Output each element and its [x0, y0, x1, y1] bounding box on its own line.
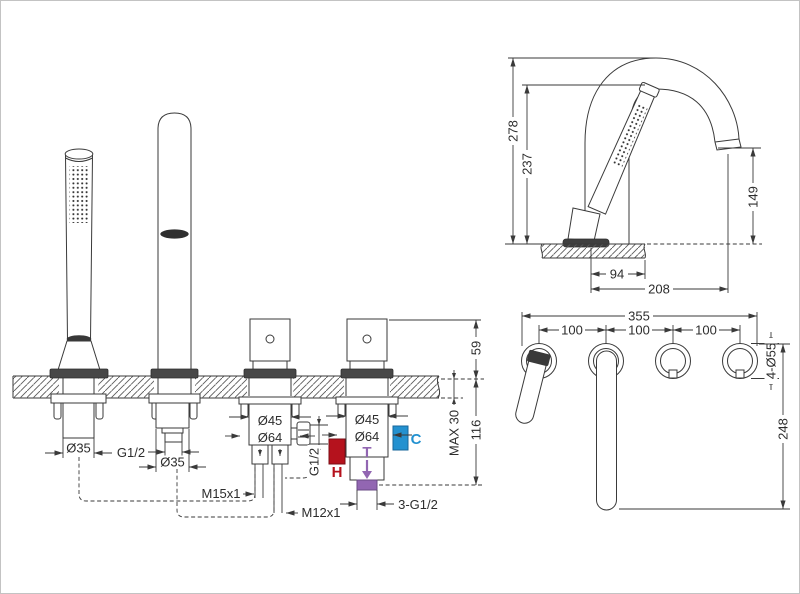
mixed-water-label: T: [362, 444, 371, 461]
faucet-dimension-drawing: Ø35 G1/2 Ø35 Ø45 Ø64: [1, 1, 799, 593]
mixer-base-dia-label: Ø64: [355, 429, 380, 444]
spout-outlet-height-label: 149: [746, 186, 761, 208]
hole-diameters-label: 4-Ø55: [764, 343, 779, 379]
spout-thread-label: G1/2: [117, 445, 145, 460]
spout-top: [597, 351, 617, 510]
diverter-dia-label: Ø45: [258, 413, 283, 428]
handle-height-label: 59: [469, 341, 484, 355]
overall-width-label: 355: [628, 309, 650, 324]
handshower-offset-label: 94: [610, 267, 624, 282]
top-view: 355 100 100 100 4-Ø55: [512, 309, 791, 511]
hand-shower-front: [50, 149, 108, 438]
hot-water-label: H: [332, 464, 343, 481]
deck-thickness-label: MAX 30: [447, 410, 462, 456]
mixed-outlet-port: [357, 480, 377, 490]
hole-spacing-3-label: 100: [695, 323, 717, 338]
thread-callouts: M15x1 M12x1 3-G1/2: [201, 486, 437, 520]
cold-water-label: C: [411, 431, 422, 448]
under-deck-depth-label: 116: [469, 420, 484, 441]
spout-hose-thread-label: M12x1: [301, 505, 340, 520]
deck-side: [541, 244, 645, 258]
spout-reach-label: 208: [648, 282, 670, 297]
dim-shower-dia: Ø35: [45, 438, 112, 458]
spout-dia-label: Ø35: [160, 455, 185, 470]
shower-dia-label: Ø35: [66, 441, 91, 456]
handshower-height-label: 237: [520, 153, 535, 175]
hole-spacing-2-label: 100: [628, 323, 650, 338]
cold-inlet-port: [393, 426, 408, 450]
bottom-threads-label: 3-G1/2: [398, 497, 438, 512]
diverter-base-dia-label: Ø64: [258, 430, 283, 445]
mounting-holes: [522, 344, 758, 379]
hand-shower-top: [512, 349, 551, 425]
front-section-view: Ø35 G1/2 Ø35 Ø45 Ø64: [13, 113, 484, 520]
mixer-dia-label: Ø45: [355, 412, 380, 427]
side-view: 278 237 149 94 208: [505, 58, 762, 297]
dim-top-widths: 355 100 100 100: [522, 309, 757, 347]
hot-inlet-port: [329, 439, 345, 464]
side-port-thread-label: G1/2: [307, 448, 322, 476]
overall-depth-label: 248: [776, 418, 791, 440]
total-height-label: 278: [506, 120, 521, 142]
hole-spacing-1-label: 100: [561, 323, 583, 338]
technical-drawing-sheet: Ø35 G1/2 Ø35 Ø45 Ø64: [0, 0, 800, 594]
spout-side: [585, 58, 741, 244]
dim-spout-threads: G1/2 Ø35: [117, 429, 206, 472]
shower-hose-thread-label: M15x1: [201, 486, 240, 501]
